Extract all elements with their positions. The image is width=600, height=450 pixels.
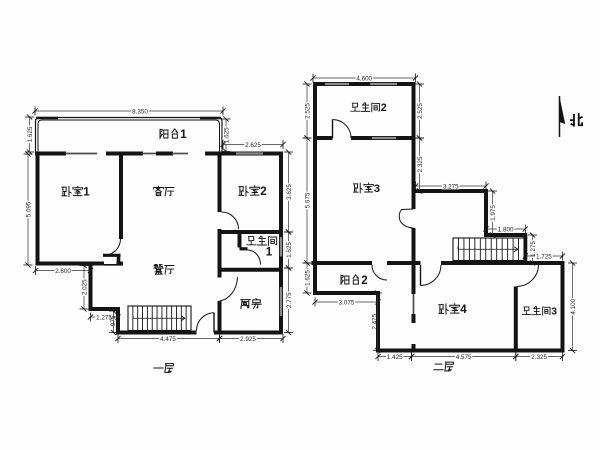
svg-text:2.475: 2.475	[371, 313, 378, 329]
svg-text:4.100: 4.100	[570, 298, 577, 314]
svg-text:3: 3	[551, 307, 557, 318]
svg-text:1.425: 1.425	[387, 354, 403, 361]
svg-text:1.725: 1.725	[536, 253, 552, 260]
svg-text:8.350: 8.350	[132, 108, 148, 115]
svg-text:2.525: 2.525	[417, 103, 424, 119]
svg-text:5.095: 5.095	[25, 201, 32, 217]
svg-text:2.925: 2.925	[240, 336, 256, 343]
svg-text:3: 3	[374, 183, 380, 195]
svg-text:4.600: 4.600	[356, 75, 372, 82]
svg-text:4: 4	[460, 304, 467, 316]
svg-text:2.325: 2.325	[531, 354, 547, 361]
svg-text:2.525: 2.525	[304, 103, 311, 119]
svg-text:1: 1	[266, 246, 273, 258]
svg-text:1.625: 1.625	[223, 127, 230, 143]
svg-text:2.325: 2.325	[417, 156, 424, 172]
svg-text:3.275: 3.275	[443, 183, 459, 190]
svg-text:3.075: 3.075	[339, 299, 355, 306]
svg-text:2: 2	[381, 102, 387, 114]
svg-text:2.025: 2.025	[81, 279, 88, 295]
svg-text:1: 1	[180, 129, 187, 141]
svg-text:2.625: 2.625	[245, 142, 261, 149]
svg-text:2: 2	[361, 275, 367, 287]
svg-text:1.625: 1.625	[304, 270, 311, 286]
svg-text:2: 2	[260, 186, 266, 198]
svg-text:5.675: 5.675	[304, 192, 311, 208]
svg-text:4.475: 4.475	[160, 336, 176, 343]
svg-text:1.800: 1.800	[498, 226, 514, 233]
svg-text:.975: .975	[110, 315, 117, 328]
svg-text:4.575: 4.575	[456, 354, 472, 361]
svg-text:1.625: 1.625	[286, 242, 293, 258]
svg-text:1.625: 1.625	[27, 126, 34, 142]
svg-text:1: 1	[83, 186, 90, 198]
svg-text:2.600: 2.600	[55, 268, 71, 275]
svg-text:1.975: 1.975	[490, 205, 497, 221]
svg-text:3.625: 3.625	[286, 184, 293, 200]
svg-text:2.775: 2.775	[286, 292, 293, 308]
